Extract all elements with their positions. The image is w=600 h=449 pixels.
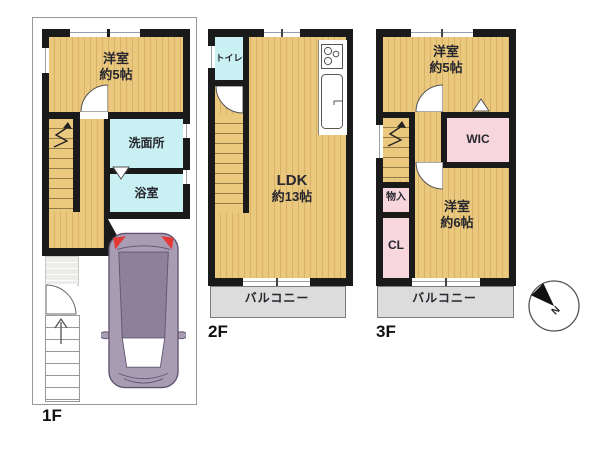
window [183,124,190,138]
floor-label-1f: 1F [42,406,62,426]
room-label: 約13帖 [242,190,342,203]
room-label: LDK [242,173,342,188]
sink-icon [321,74,343,129]
room-label: 約6帖 [407,216,507,229]
approach-arrow-icon [51,316,71,346]
floor-label-2f: 2F [208,322,228,342]
room-label: 浴室 [110,187,183,199]
door-mullion [445,278,447,286]
window [110,29,140,37]
stairs-up-arrow-icon [385,120,407,148]
window-mullion [281,29,283,37]
entrance-door-swing-icon [45,284,77,315]
porch-1f [45,256,79,286]
balcony-label: バルコニー [210,292,344,304]
window [70,29,107,37]
window [183,170,190,184]
folding-door-icon [112,166,130,180]
room-label: 洋室 [66,52,166,65]
door-swing-icon [215,86,243,114]
room-label: 約5帖 [66,68,166,81]
car-icon [101,222,186,399]
stove-icon [321,44,343,69]
floor-plan-canvas: 洋室 約5帖 洗面所 浴室 1F トイレ LDK 約13帖 バルコニー 2F [0,0,600,449]
stairs-2f [215,114,243,213]
room-label: WIC [447,133,509,145]
room-label: 洋室 [396,45,496,58]
door-swing-icon [415,84,443,112]
door-mullion [276,278,278,286]
wall [441,162,509,168]
balcony-label: バルコニー [377,292,512,304]
door-swing-icon [415,162,443,190]
window [376,125,383,158]
stairs-up-arrow-icon [51,121,73,149]
door-swing-icon [80,84,108,112]
room-label: トイレ [214,54,244,63]
room-label: 洗面所 [110,137,183,149]
window [42,48,49,73]
window-mullion [441,29,443,37]
room-label: 約5帖 [396,61,496,74]
room-label: CL [383,239,409,251]
room-label: 洋室 [407,200,507,213]
door-opening [80,112,108,119]
folding-door-icon [472,98,490,112]
compass-icon: N [527,279,581,333]
floor-label-3f: 3F [376,322,396,342]
hallway-1f-lower [49,212,80,248]
